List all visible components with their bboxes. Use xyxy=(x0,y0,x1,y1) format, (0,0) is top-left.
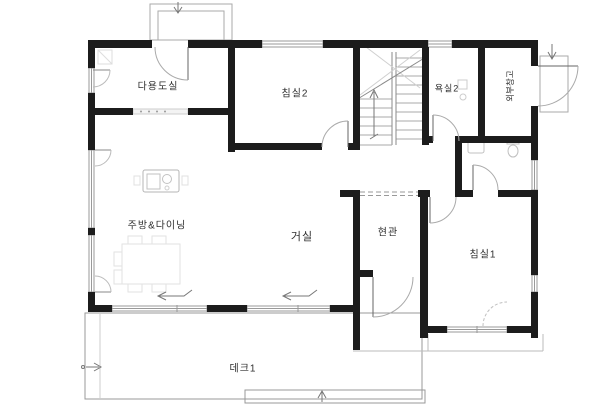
room-label-bath2: 욕실2 xyxy=(435,82,460,95)
utility-pass-through xyxy=(133,109,188,114)
room-label-deck: 데크1 xyxy=(230,360,257,375)
sliding-arrows xyxy=(158,290,317,300)
room-label-utility: 다용도실 xyxy=(138,78,179,93)
back-porch-outline xyxy=(150,4,232,40)
bedroom2-door xyxy=(322,121,348,147)
side-landing-outline xyxy=(540,56,568,112)
dining-table-fixture xyxy=(114,236,180,292)
bathroom1-door xyxy=(473,165,498,190)
bedroom1-dashed-arc xyxy=(483,302,507,326)
staircase xyxy=(356,47,426,145)
room-label-storage: 외부창고 xyxy=(504,70,516,101)
kitchen-casement-bottom xyxy=(95,276,111,292)
kitchen-island-fixture xyxy=(134,170,188,192)
utility-back-door xyxy=(155,47,188,80)
storage-exterior-door xyxy=(538,66,578,106)
deck-outline xyxy=(85,313,425,403)
stair-up-arrow xyxy=(370,90,378,139)
front-door xyxy=(373,277,413,317)
foundation-apron xyxy=(353,334,543,351)
room-label-bedroom2: 침실2 xyxy=(282,85,309,100)
room-label-bedroom1: 침실1 xyxy=(470,246,497,261)
floor-plan-linework xyxy=(0,0,610,405)
room-label-kitchen: 주방&다이닝 xyxy=(128,217,187,232)
deck-entry-arrow xyxy=(82,363,102,371)
bathroom2-fixtures xyxy=(458,80,467,100)
floor-plan: 다용도실 침실2 욕실2 외부창고 주방&다이닝 거실 현관 침실1 데크1 xyxy=(0,0,610,405)
washer-fixture xyxy=(98,50,112,64)
deck-step-arrow xyxy=(318,391,326,402)
room-label-living: 거실 xyxy=(291,228,313,244)
room-label-entry: 현관 xyxy=(378,224,398,239)
bedroom1-door xyxy=(430,197,456,223)
entry-open-boundary xyxy=(360,192,418,196)
kitchen-casement-top xyxy=(95,150,111,166)
side-entry-arrow xyxy=(548,44,556,59)
utility-casement xyxy=(93,70,110,87)
